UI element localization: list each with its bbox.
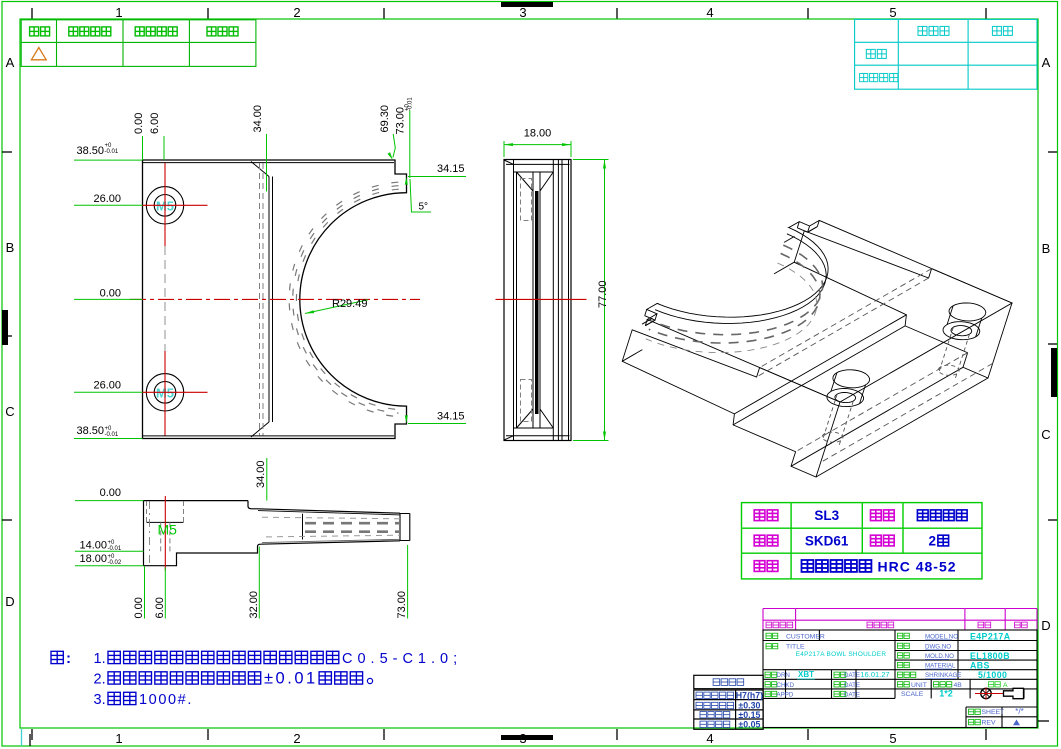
svg-text:18.00: 18.00 — [524, 128, 552, 140]
svg-text:26.00: 26.00 — [93, 193, 121, 205]
svg-text:UNIT: UNIT — [911, 682, 927, 689]
svg-text:HRC 48-52: HRC 48-52 — [878, 558, 957, 574]
svg-text:38.50: 38.50 — [76, 145, 104, 157]
svg-text:34.00: 34.00 — [255, 460, 267, 488]
svg-text:2: 2 — [293, 731, 300, 746]
svg-text::: : — [66, 650, 71, 667]
svg-text:*/*: */* — [1015, 707, 1023, 716]
svg-text:SKD61: SKD61 — [805, 533, 849, 548]
svg-text:1: 1 — [115, 5, 122, 20]
svg-text:38.50: 38.50 — [76, 425, 104, 437]
svg-text:E4P217A: E4P217A — [970, 631, 1011, 641]
svg-text:B: B — [6, 240, 15, 255]
svg-text:D: D — [5, 594, 14, 609]
svg-text:69.30: 69.30 — [379, 105, 391, 133]
svg-text:1000#.: 1000#. — [139, 692, 193, 708]
svg-text:C: C — [5, 404, 14, 419]
svg-text:B: B — [1042, 241, 1051, 256]
svg-text:5: 5 — [889, 731, 896, 746]
svg-text:-0.02: -0.02 — [108, 560, 122, 566]
svg-text:MODEL.NO: MODEL.NO — [925, 633, 958, 640]
svg-text:A: A — [1042, 55, 1051, 70]
svg-text:4: 4 — [706, 731, 713, 746]
svg-text:DATE: DATE — [844, 672, 860, 679]
svg-text:77.00: 77.00 — [597, 280, 609, 308]
svg-text:CUSTOMER: CUSTOMER — [786, 633, 825, 640]
svg-text:R29.49: R29.49 — [332, 298, 367, 310]
svg-text:APPD: APPD — [777, 691, 794, 698]
svg-text:3: 3 — [519, 5, 526, 20]
svg-text:1*2: 1*2 — [939, 689, 953, 699]
svg-text:1.: 1. — [94, 651, 106, 667]
svg-text:MOLD.NO: MOLD.NO — [925, 653, 954, 660]
svg-text:32.00: 32.00 — [248, 591, 260, 619]
svg-text:-0.01: -0.01 — [105, 149, 119, 155]
svg-text:5°: 5° — [419, 202, 429, 213]
svg-text:2.: 2. — [94, 672, 106, 688]
svg-text:M5: M5 — [158, 522, 178, 538]
svg-text:0.00: 0.00 — [133, 113, 145, 134]
svg-text:16.01.27: 16.01.27 — [860, 670, 889, 679]
svg-text:26.00: 26.00 — [93, 379, 121, 391]
svg-text:SCALE: SCALE — [901, 691, 924, 698]
svg-text:A: A — [1003, 682, 1008, 689]
svg-text:E4P217A BOWL SHOULDER: E4P217A BOWL SHOULDER — [796, 651, 887, 658]
svg-text:0.00: 0.00 — [133, 597, 145, 618]
svg-text:6.00: 6.00 — [154, 597, 166, 618]
svg-text:2: 2 — [293, 5, 300, 20]
svg-text:±0.01: ±0.01 — [264, 670, 318, 688]
svg-text:CHKD: CHKD — [777, 682, 795, 689]
svg-text:DWG.NO: DWG.NO — [925, 643, 951, 650]
svg-text:A: A — [6, 55, 15, 70]
svg-text:MATERIAL: MATERIAL — [925, 663, 956, 670]
svg-text:SHEET: SHEET — [982, 709, 1005, 716]
svg-text:5: 5 — [889, 5, 896, 20]
svg-text:-0.01: -0.01 — [408, 97, 414, 111]
svg-text:±0.15: ±0.15 — [738, 710, 760, 720]
svg-text:SHRINKAGE: SHRINKAGE — [925, 672, 961, 679]
svg-text:DATE: DATE — [844, 691, 860, 698]
svg-text:DRN: DRN — [777, 672, 790, 679]
svg-text:34.00: 34.00 — [252, 105, 264, 133]
svg-text:-0.01: -0.01 — [105, 432, 119, 438]
svg-text:2: 2 — [928, 533, 936, 548]
svg-text:4B: 4B — [954, 682, 963, 689]
svg-text:14.00: 14.00 — [79, 539, 107, 551]
svg-text:D: D — [1041, 618, 1050, 633]
svg-text:XBT: XBT — [798, 670, 814, 679]
svg-text:34.15: 34.15 — [437, 163, 465, 175]
svg-text:C0.5-C1.0;: C0.5-C1.0; — [342, 651, 462, 667]
svg-text:SL3: SL3 — [814, 508, 839, 523]
svg-text:4: 4 — [706, 5, 713, 20]
svg-text:C: C — [1041, 427, 1050, 442]
svg-text:TITLE: TITLE — [786, 644, 805, 651]
svg-text:73.00: 73.00 — [396, 591, 408, 619]
svg-text:6.00: 6.00 — [149, 113, 161, 134]
svg-text:5/1000: 5/1000 — [978, 670, 1007, 680]
svg-text:H7(h7): H7(h7) — [736, 690, 763, 700]
svg-text:0.00: 0.00 — [100, 487, 121, 499]
svg-text:0.00: 0.00 — [100, 287, 121, 299]
svg-text:1: 1 — [115, 731, 122, 746]
svg-text:34.15: 34.15 — [437, 410, 465, 422]
svg-text:18.00: 18.00 — [79, 553, 107, 565]
svg-text:±0.05: ±0.05 — [738, 719, 760, 729]
svg-text:DATE: DATE — [844, 682, 860, 689]
svg-text:-0.01: -0.01 — [108, 546, 122, 552]
svg-text:EL1800B: EL1800B — [970, 651, 1010, 661]
svg-text:ABS: ABS — [970, 661, 990, 671]
svg-text:REV: REV — [982, 720, 996, 727]
svg-text:3.: 3. — [94, 692, 106, 708]
